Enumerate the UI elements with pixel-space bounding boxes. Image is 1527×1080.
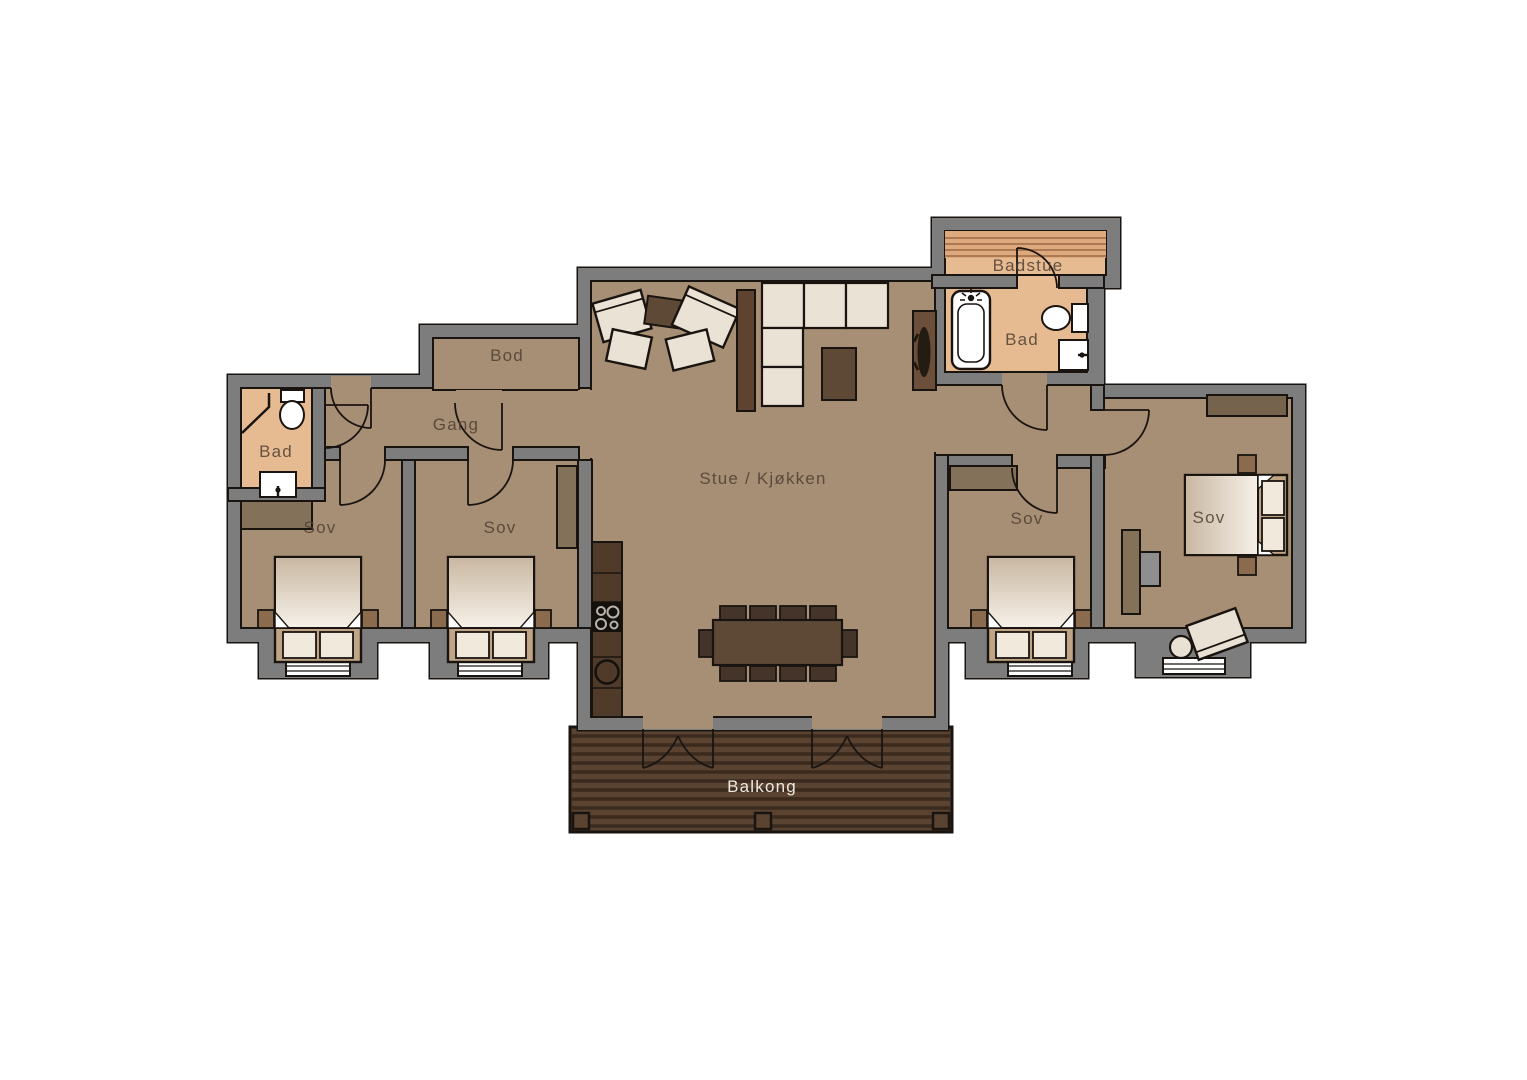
wall-sov4-left bbox=[1091, 385, 1104, 410]
nightstand-icon bbox=[362, 610, 378, 628]
nightstand-icon bbox=[1238, 557, 1256, 575]
wall-gang-sov bbox=[325, 447, 340, 460]
nightstand-icon bbox=[1075, 610, 1091, 628]
kitchen-counter bbox=[592, 542, 622, 717]
room-label-bad-left: Bad bbox=[259, 442, 293, 461]
room-label-bod: Bod bbox=[490, 346, 524, 365]
nightstand-icon bbox=[971, 610, 987, 628]
wood-stove-icon bbox=[913, 311, 936, 390]
room-label-sov-4: Sov bbox=[1193, 508, 1226, 527]
wardrobe-icon bbox=[950, 466, 1017, 490]
wall-gang-sov bbox=[385, 447, 468, 460]
room-label-badstue: Badstue bbox=[993, 256, 1064, 275]
floorplan-page: Bad Sov Sov Gang Bod Stue / Kjøkken Bads… bbox=[0, 0, 1527, 1080]
shelf-icon bbox=[1207, 395, 1287, 416]
sink-icon bbox=[260, 472, 296, 497]
bed-icon bbox=[258, 557, 378, 662]
toilet-icon bbox=[280, 390, 304, 429]
wall-sov2-stue bbox=[578, 460, 592, 628]
nightstand-icon bbox=[258, 610, 274, 628]
room-label-stue: Stue / Kjøkken bbox=[699, 469, 826, 488]
room-label-sov-2: Sov bbox=[484, 518, 517, 537]
bed-icon bbox=[971, 557, 1091, 662]
nightstand-icon bbox=[535, 610, 551, 628]
shelf-icon bbox=[557, 466, 577, 548]
nightstand-icon bbox=[1238, 455, 1256, 473]
wall-sov4-left bbox=[1091, 455, 1104, 628]
badstue-bench bbox=[945, 231, 1106, 258]
coffee-table-icon bbox=[822, 348, 856, 400]
sink-icon bbox=[1059, 340, 1088, 370]
wall-badstue-bad bbox=[1059, 275, 1104, 288]
room-label-balkong: Balkong bbox=[727, 777, 797, 796]
window-icon bbox=[1163, 658, 1225, 674]
nightstand-icon bbox=[431, 610, 447, 628]
dining-table-icon bbox=[713, 620, 842, 665]
bed-icon bbox=[431, 557, 551, 662]
wall-sov1-sov2 bbox=[402, 460, 415, 628]
room-label-sov-3: Sov bbox=[1011, 509, 1044, 528]
bathtub-icon bbox=[952, 289, 990, 369]
room-label-gang: Gang bbox=[433, 415, 479, 434]
desk-chair-icon bbox=[1140, 552, 1160, 586]
floorplan-drawing: Bad Sov Sov Gang Bod Stue / Kjøkken Bads… bbox=[0, 0, 1527, 1080]
stool-icon bbox=[1170, 636, 1192, 658]
room-label-bad-right: Bad bbox=[1005, 330, 1039, 349]
ottoman-icon bbox=[606, 329, 652, 369]
wardrobe-icon bbox=[241, 501, 312, 529]
desk-icon bbox=[1122, 530, 1140, 614]
wall-badstue-bad bbox=[932, 275, 1017, 288]
tall-cabinet-icon bbox=[737, 290, 755, 411]
wall-bad-left-side bbox=[312, 388, 325, 501]
wall-gang-sov bbox=[513, 447, 579, 460]
room-label-sov-1: Sov bbox=[304, 518, 337, 537]
toilet-icon bbox=[1042, 304, 1088, 332]
